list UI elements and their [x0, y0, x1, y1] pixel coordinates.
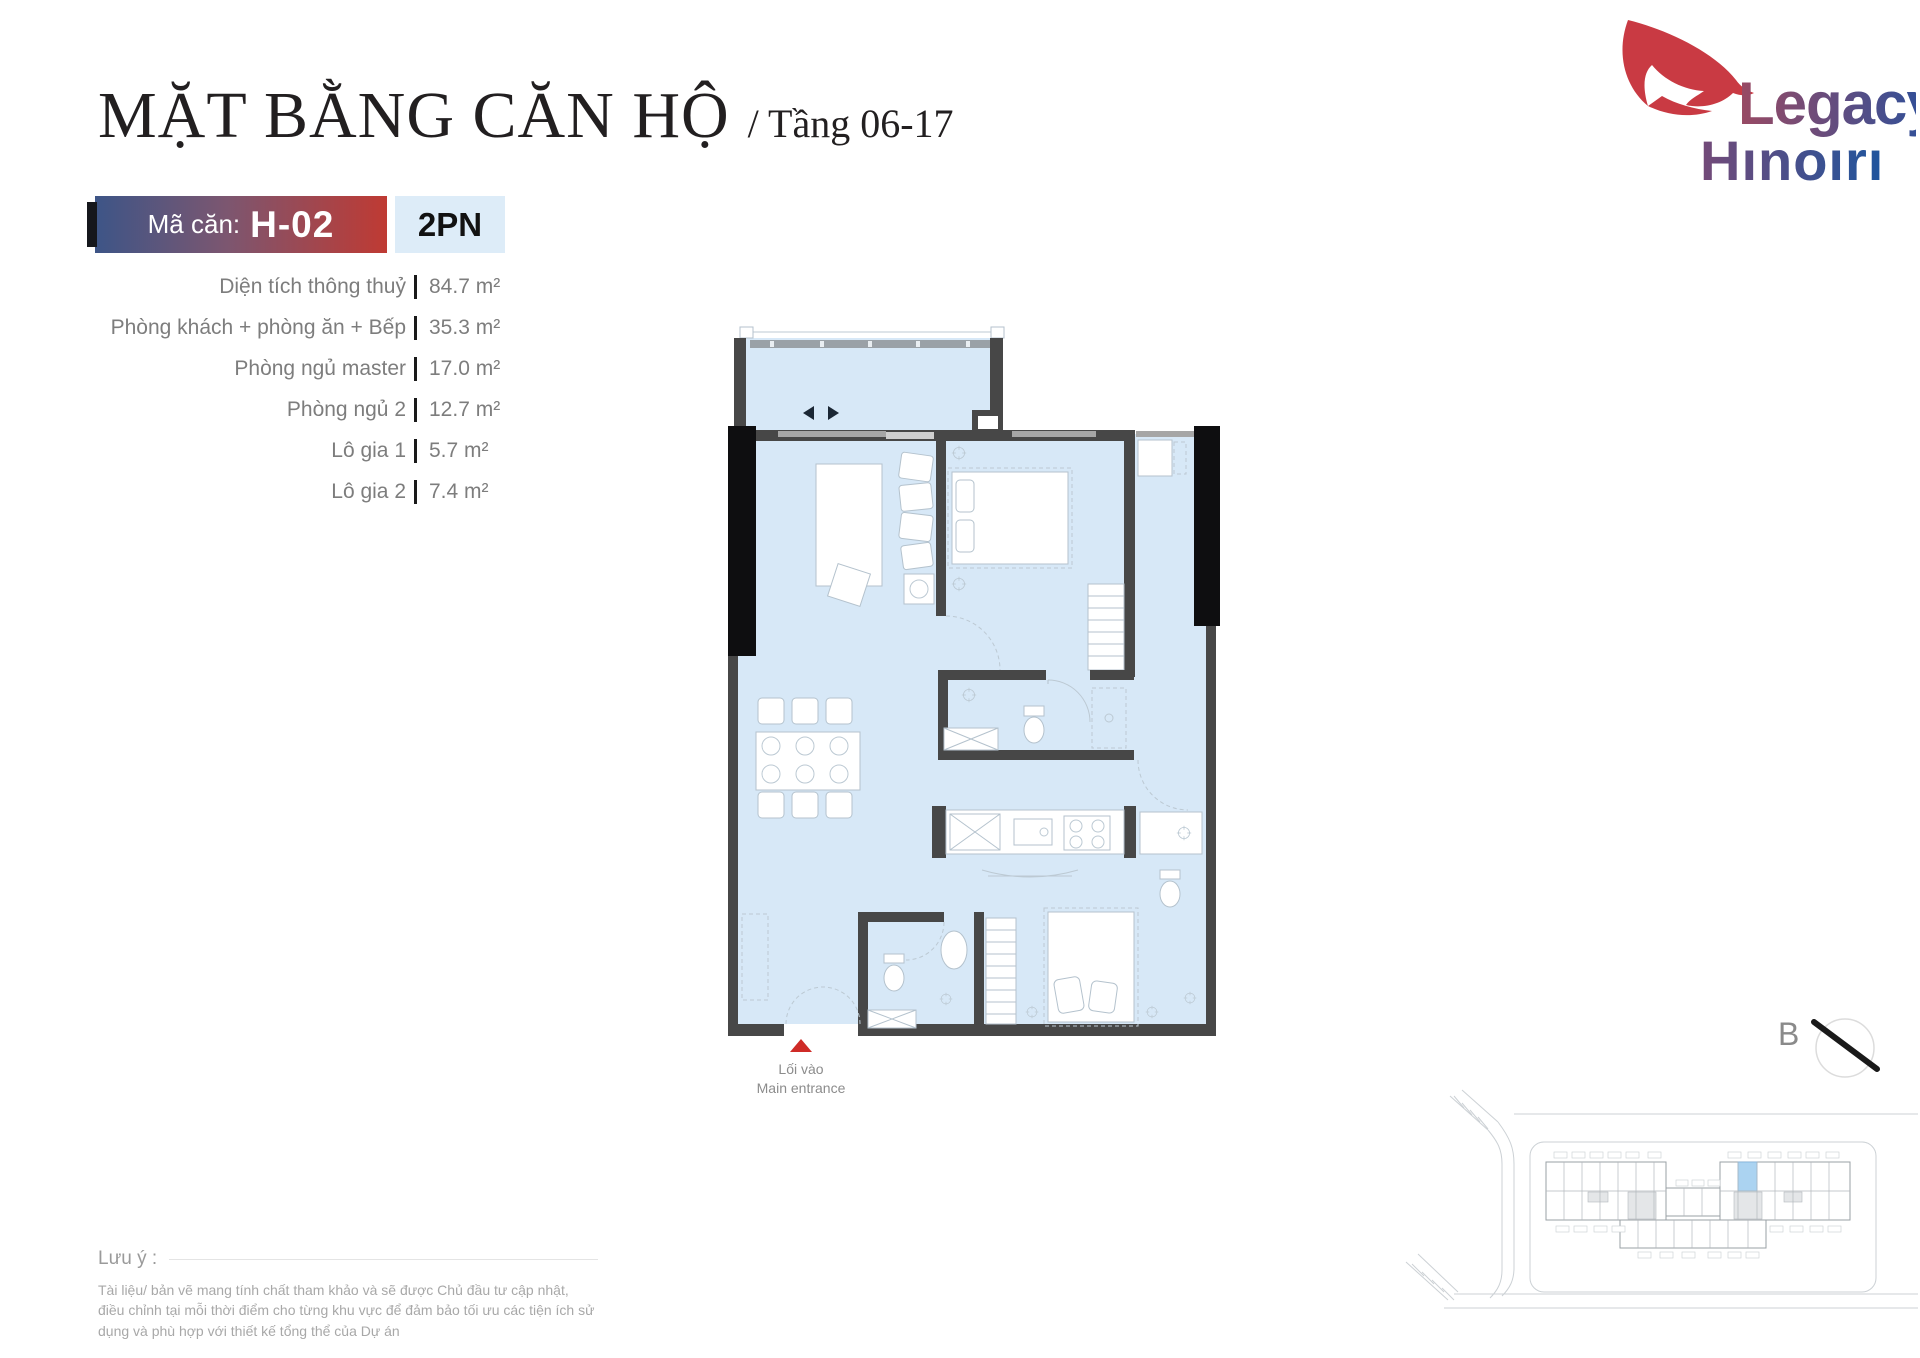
- compass: B: [1770, 1000, 1900, 1095]
- spec-value: 17.0 m²: [429, 357, 525, 381]
- spec-row: Diện tích thông thuỷ 84.7 m²: [95, 266, 525, 307]
- highlighted-unit: [1738, 1162, 1757, 1191]
- spec-value: 12.7 m²: [429, 398, 525, 422]
- spec-separator: [414, 480, 417, 504]
- stove: [1064, 816, 1110, 850]
- page-title: MẶT BẰNG CĂN HỘ / Tầng 06-17: [98, 78, 954, 154]
- logo-line1: Legacy: [1738, 70, 1916, 137]
- vanity-2: [868, 1010, 916, 1028]
- badge-edge-tab: [87, 202, 97, 247]
- disclaimer: Lưu ý : Tài liệu/ bản vẽ mang tính chất …: [98, 1248, 598, 1341]
- entrance-marker-icon: [790, 1039, 812, 1052]
- floor-plan: Lối vào Main entrance: [728, 322, 1233, 1112]
- key-plan-map: [1398, 1086, 1920, 1348]
- spec-separator: [414, 275, 417, 299]
- spec-separator: [414, 398, 417, 422]
- toilet-3: [884, 954, 904, 991]
- wardrobe: [1088, 584, 1124, 670]
- building-footprint: [1546, 1152, 1850, 1258]
- divider-line: [169, 1259, 598, 1260]
- spec-row: Lô gia 2 7.4 m²: [95, 471, 525, 512]
- disclaimer-body: Tài liệu/ bản vẽ mang tính chất tham khả…: [98, 1280, 598, 1341]
- sink: [1014, 819, 1052, 845]
- hall-closet: [986, 918, 1016, 1024]
- logo-line2: Hınoırı: [1700, 129, 1884, 192]
- spec-row: Phòng ngủ master 17.0 m²: [95, 348, 525, 389]
- bird-icon: [1622, 20, 1754, 115]
- title-floor-range: / Tầng 06-17: [748, 100, 954, 147]
- ac-unit: [1138, 440, 1172, 476]
- brochure-page: MẶT BẰNG CĂN HỘ / Tầng 06-17 Legacy Hıno…: [0, 0, 1920, 1358]
- unit-code-badge: Mã căn: H-02: [95, 196, 387, 253]
- vanity: [944, 728, 998, 750]
- spec-value: 5.7 m²: [429, 439, 525, 463]
- spec-separator: [414, 316, 417, 340]
- unit-code-value: H-02: [250, 204, 334, 246]
- legacy-hinoiri-logo: Legacy Hınoırı: [1596, 12, 1916, 197]
- spec-row: Phòng khách + phòng ăn + Bếp 35.3 m²: [95, 307, 525, 348]
- spec-label: Diện tích thông thuỷ: [95, 275, 406, 299]
- spec-row: Lô gia 1 5.7 m²: [95, 430, 525, 471]
- spec-table: Diện tích thông thuỷ 84.7 m² Phòng khách…: [95, 266, 525, 512]
- column-left: [728, 426, 756, 656]
- entrance-label-vi: Lối vào: [778, 1061, 823, 1077]
- balcony-1-floor: [744, 338, 1000, 434]
- unit-badge: Mã căn: H-02 2PN: [95, 196, 505, 253]
- dining-set: [756, 698, 860, 818]
- living-room: [816, 452, 934, 607]
- toilet-2: [1160, 870, 1180, 907]
- spec-label: Lô gia 1: [95, 439, 406, 463]
- spec-value: 7.4 m²: [429, 480, 525, 504]
- spec-separator: [414, 357, 417, 381]
- spec-label: Phòng ngủ 2: [95, 398, 406, 422]
- compass-north-label: B: [1778, 1016, 1799, 1052]
- disclaimer-title: Lưu ý :: [98, 1248, 157, 1270]
- entrance-label-en: Main entrance: [757, 1080, 846, 1096]
- unit-code-label: Mã căn:: [148, 209, 241, 240]
- laundry-counter: [1140, 812, 1202, 854]
- sink-oval: [941, 931, 967, 969]
- balcony-railing: [740, 327, 1004, 348]
- column-right: [1194, 426, 1220, 626]
- spec-label: Phòng khách + phòng ăn + Bếp: [95, 316, 406, 340]
- toilet: [1024, 706, 1044, 743]
- fridge: [950, 814, 1000, 850]
- title-main: MẶT BẰNG CĂN HỘ: [98, 78, 730, 154]
- spec-row: Phòng ngủ 2 12.7 m²: [95, 389, 525, 430]
- unit-type-badge: 2PN: [395, 196, 505, 253]
- spec-value: 35.3 m²: [429, 316, 525, 340]
- spec-label: Lô gia 2: [95, 480, 406, 504]
- spec-separator: [414, 439, 417, 463]
- spec-value: 84.7 m²: [429, 275, 525, 299]
- spec-label: Phòng ngủ master: [95, 357, 406, 381]
